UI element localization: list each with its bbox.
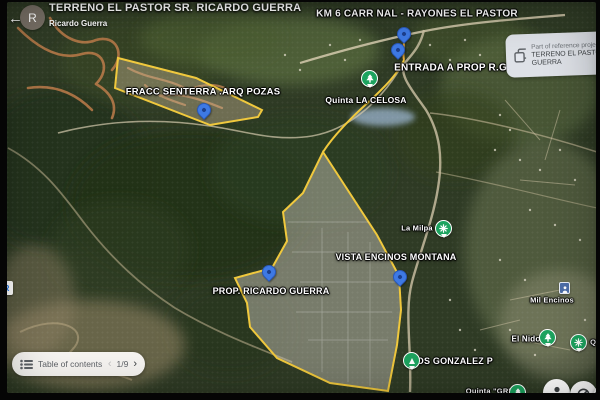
poi-marker-los-gonzalez[interactable] (403, 352, 420, 369)
person-icon (562, 286, 568, 293)
list-icon (20, 359, 33, 370)
map-label-entrada-prop[interactable]: ENTRADA A PROP R.G. (394, 63, 510, 74)
tree-icon (544, 333, 552, 342)
starburst-icon (439, 224, 448, 233)
poi-marker-mil-encinos[interactable] (559, 282, 570, 294)
chevron-left-icon[interactable]: ‹ (108, 359, 112, 370)
poi-marker-recycle[interactable] (570, 334, 587, 351)
map-label-el-nido[interactable]: El Nido (512, 335, 541, 344)
person-icon (551, 386, 563, 393)
project-header: ← R TERRENO EL PASTOR SR. RICARDO GUERRA… (7, 2, 300, 40)
map-label-mil-encinos[interactable]: Mil Encinos (530, 296, 574, 305)
poi-marker-la-milpa[interactable] (435, 220, 452, 237)
ref-card-line3: GUERRA (532, 57, 596, 67)
table-of-contents-bar[interactable]: Table of contents ‹ 1/9 › (12, 352, 145, 376)
map-label-prop-ricardo-guerra[interactable]: PROP. RICARDO GUERRA (213, 286, 330, 296)
toc-label: Table of contents (38, 359, 103, 369)
overlapping-squares-icon (514, 48, 527, 63)
map-label-quinta-gr[interactable]: Quinta "GR" (466, 387, 512, 394)
circular-arrows-icon (574, 338, 583, 347)
map-label-vista-encinos[interactable]: VISTA ENCINOS MONTANA (335, 252, 456, 262)
map-label-fracc-senterra[interactable]: FRACC SENTERRA .ARQ POZAS (126, 87, 281, 98)
slashed-circle-icon (577, 388, 590, 393)
reference-project-card[interactable]: Part of reference proje TERRENO EL PASTO… (505, 31, 596, 77)
page-subtitle: Ricardo Guerra (49, 19, 107, 28)
map-canvas[interactable]: KM 6 CARR NAL - RAYONES EL PASTOR ENTRAD… (7, 2, 596, 393)
avatar[interactable]: R (20, 5, 45, 30)
tree-icon (514, 388, 522, 393)
map-label-km6-road[interactable]: KM 6 CARR NAL - RAYONES EL PASTOR (316, 9, 518, 20)
tree-icon (366, 74, 374, 83)
toc-page-indicator: 1/9 (117, 359, 129, 369)
chevron-right-icon[interactable]: › (133, 359, 137, 370)
map-label-los-gonzalez[interactable]: LOS GONZALEZ P (411, 356, 493, 366)
map-label-quinta-la-celosa[interactable]: Quinta LA CELOSA (325, 95, 406, 105)
poi-marker-quinta-la-celosa[interactable] (361, 70, 378, 87)
edge-badge-marker[interactable]: R (7, 281, 13, 295)
poi-marker-el-nido[interactable] (539, 329, 556, 346)
map-label-la-milpa[interactable]: La Milpa (401, 224, 433, 233)
page-title: TERRENO EL PASTOR SR. RICARDO GUERRA (49, 2, 301, 14)
map-label-edge-partial[interactable]: QU (590, 338, 596, 347)
up-arrow-icon (408, 357, 416, 365)
